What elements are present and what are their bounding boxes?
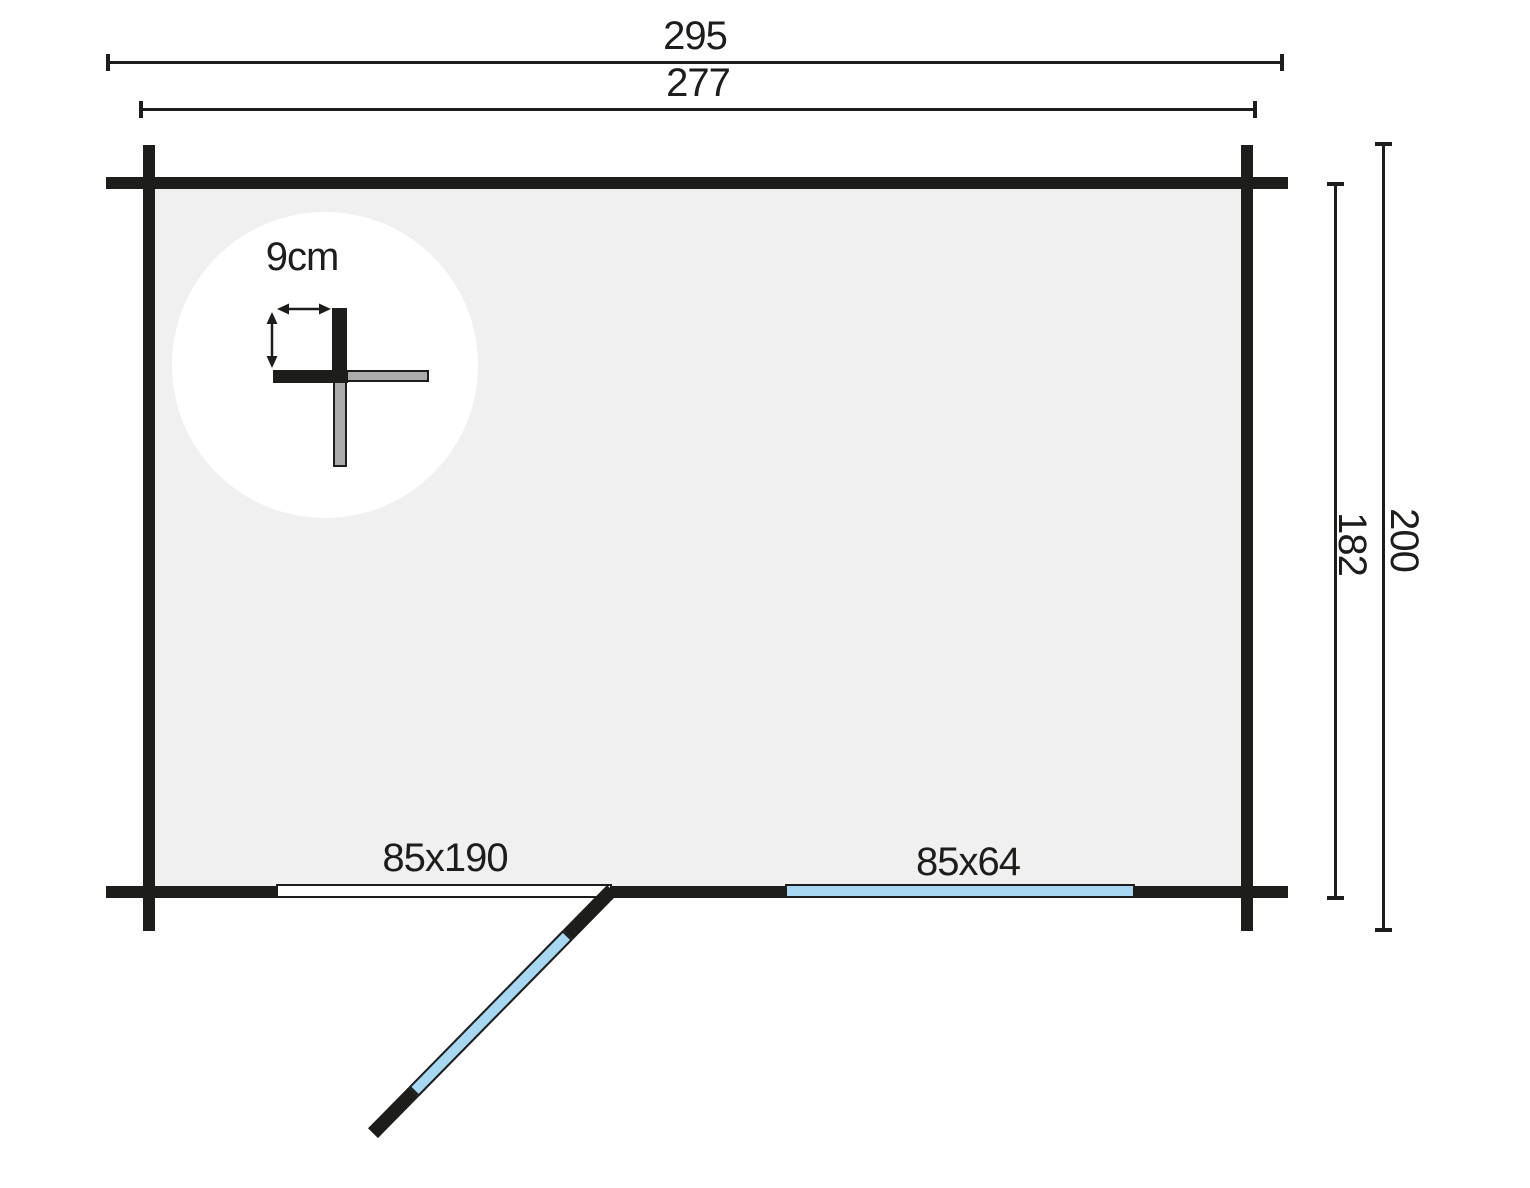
wall-top bbox=[106, 177, 1288, 189]
dim-label-wall-width: 277 bbox=[666, 63, 730, 103]
log-cross-section-vertical bbox=[333, 374, 347, 467]
door-opening bbox=[276, 884, 612, 898]
dim-tick bbox=[1327, 896, 1344, 900]
floor-plan-canvas: 295 277 182 200 85x190 85x64 9cm bbox=[0, 0, 1530, 1188]
window bbox=[785, 884, 1135, 898]
dim-label-inner-depth: 182 bbox=[1332, 512, 1372, 576]
dim-tick bbox=[1280, 54, 1284, 71]
log-cross-section-horizontal bbox=[346, 370, 429, 382]
wall-bottom-left-segment bbox=[106, 886, 276, 898]
wall-thickness-arrows bbox=[255, 295, 345, 380]
dim-bar bbox=[139, 108, 1257, 111]
height-arrow-icon bbox=[267, 312, 278, 368]
wall-left bbox=[143, 145, 155, 931]
wall-right bbox=[1241, 145, 1253, 931]
wall-bottom-right-segment bbox=[1135, 886, 1288, 898]
wall-bottom-mid-segment bbox=[612, 886, 787, 898]
window-size-label: 85x64 bbox=[916, 842, 1020, 882]
dim-tick bbox=[1253, 101, 1257, 118]
door-leaf-panel bbox=[409, 930, 573, 1097]
wall-thickness-label: 9cm bbox=[266, 237, 339, 277]
dim-label-total-depth: 200 bbox=[1384, 508, 1424, 572]
door-size-label: 85x190 bbox=[382, 838, 507, 878]
width-arrow-icon bbox=[277, 304, 331, 315]
dim-tick bbox=[1375, 928, 1392, 932]
dim-label-total-width: 295 bbox=[663, 16, 727, 56]
door-leaf bbox=[368, 885, 617, 1138]
